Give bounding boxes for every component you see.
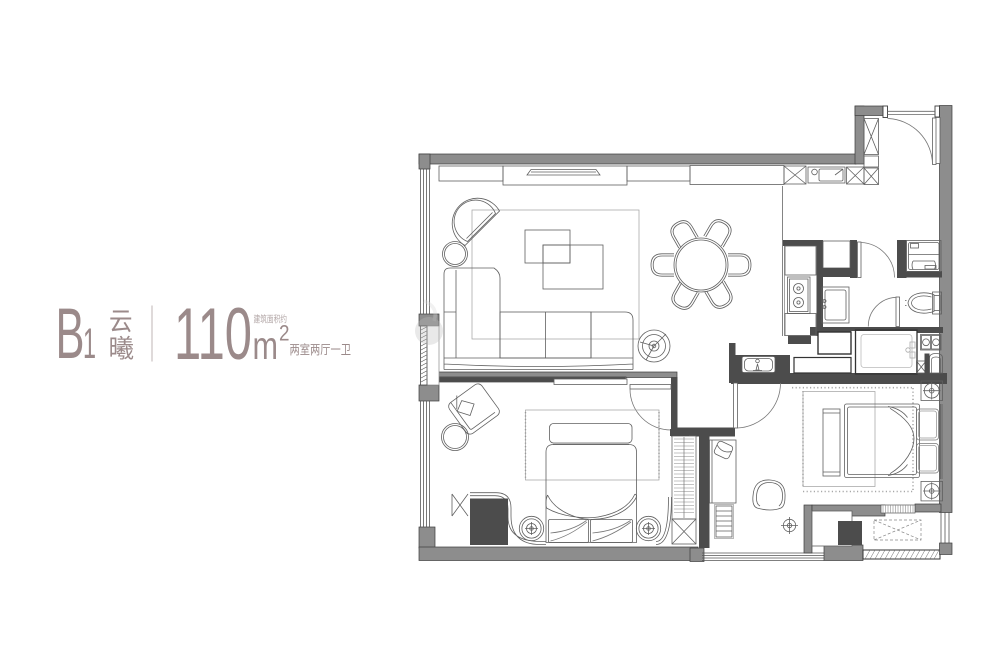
svg-text:建筑面积约: 建筑面积约 <box>254 314 288 326</box>
svg-text:云: 云 <box>109 308 133 336</box>
svg-text:1: 1 <box>83 320 96 368</box>
svg-text:曦: 曦 <box>109 336 135 364</box>
svg-text:B: B <box>56 295 85 374</box>
svg-text:m: m <box>253 325 279 368</box>
svg-text:110: 110 <box>174 294 252 375</box>
svg-text:两室两厅一卫: 两室两厅一卫 <box>290 342 352 357</box>
